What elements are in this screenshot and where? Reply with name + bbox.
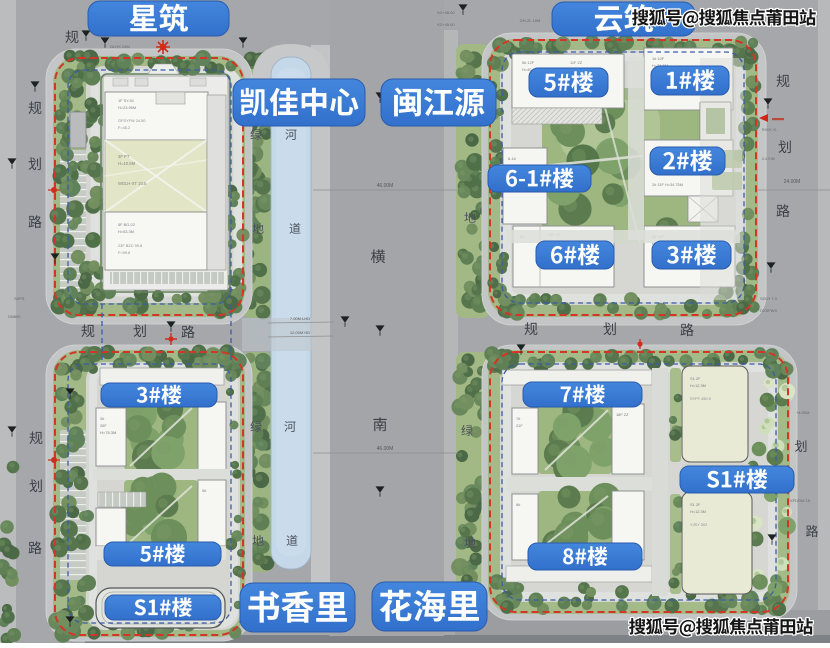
svg-text:DLHX 24M: DLHX 24M xyxy=(110,44,130,49)
svg-text:GH-ZL 16M: GH-ZL 16M xyxy=(520,18,541,23)
svg-text:5# 12F: 5# 12F xyxy=(522,60,535,65)
svg-text:1F SY-01: 1F SY-01 xyxy=(118,98,134,103)
svg-text:H=12.3M: H=12.3M xyxy=(690,383,706,388)
svg-text:YJSY 302: YJSY 302 xyxy=(690,522,707,527)
svg-text:DXSFWX: DXSFWX xyxy=(760,308,777,313)
svg-text:K2+45.00: K2+45.00 xyxy=(437,10,455,15)
svg-text:SYPT 450.0: SYPT 450.0 xyxy=(690,396,712,401)
svg-text:21F: 21F xyxy=(516,423,523,428)
svg-text:2F PT: 2F PT xyxy=(118,154,130,159)
svg-text:26F: 26F xyxy=(100,423,107,428)
svg-text:46.00M: 46.00M xyxy=(377,183,394,189)
svg-text:1# 10F: 1# 10F xyxy=(652,56,665,61)
svg-text:S1 2F: S1 2F xyxy=(690,502,701,507)
svg-text:2.4 YJM: 2.4 YJM xyxy=(762,157,775,161)
svg-text:H=12.3M: H=12.3M xyxy=(690,509,706,514)
svg-text:H=10.5M: H=10.5M xyxy=(118,161,136,166)
svg-text:SZPS: SZPS xyxy=(14,296,25,301)
svg-text:S1 2F: S1 2F xyxy=(690,376,701,381)
svg-text:11F ZZ: 11F ZZ xyxy=(570,60,583,65)
svg-text:7.00M LHD: 7.00M LHD xyxy=(290,316,310,321)
svg-text:WDLH-XT 10.5: WDLH-XT 10.5 xyxy=(118,181,147,186)
svg-text:GFSYFW 24.50: GFSYFW 24.50 xyxy=(118,118,146,123)
svg-text:XFDGM 15: XFDGM 15 xyxy=(790,498,811,503)
svg-text:H=23.95M: H=23.95M xyxy=(118,105,136,110)
svg-text:F=99.8: F=99.8 xyxy=(118,250,130,255)
svg-text:46.00M: 46.00M xyxy=(377,446,394,452)
svg-text:6-1#: 6-1# xyxy=(508,156,517,161)
svg-text:+4.50M: +4.50M xyxy=(796,410,809,415)
svg-text:F=45.2: F=45.2 xyxy=(118,125,130,130)
svg-text:SZLH 7.0: SZLH 7.0 xyxy=(760,296,778,301)
svg-text:DN800: DN800 xyxy=(8,314,21,319)
svg-text:RXCK YL: RXCK YL xyxy=(762,128,777,132)
svg-text:2# 11F H=34.75M: 2# 11F H=34.75M xyxy=(652,182,683,187)
svg-text:5F BG-02: 5F BG-02 xyxy=(118,222,135,227)
svg-text:H=53.3M: H=53.3M xyxy=(118,229,134,234)
svg-text:18F ZZ: 18F ZZ xyxy=(616,412,629,417)
svg-text:K2+45.00: K2+45.00 xyxy=(437,22,455,27)
svg-text:24.00M: 24.00M xyxy=(784,179,801,185)
svg-text:23F BZC 99.8: 23F BZC 99.8 xyxy=(118,243,142,248)
svg-text:12.00M HD: 12.00M HD xyxy=(290,330,310,335)
svg-text:H=78.3M: H=78.3M xyxy=(100,430,116,435)
